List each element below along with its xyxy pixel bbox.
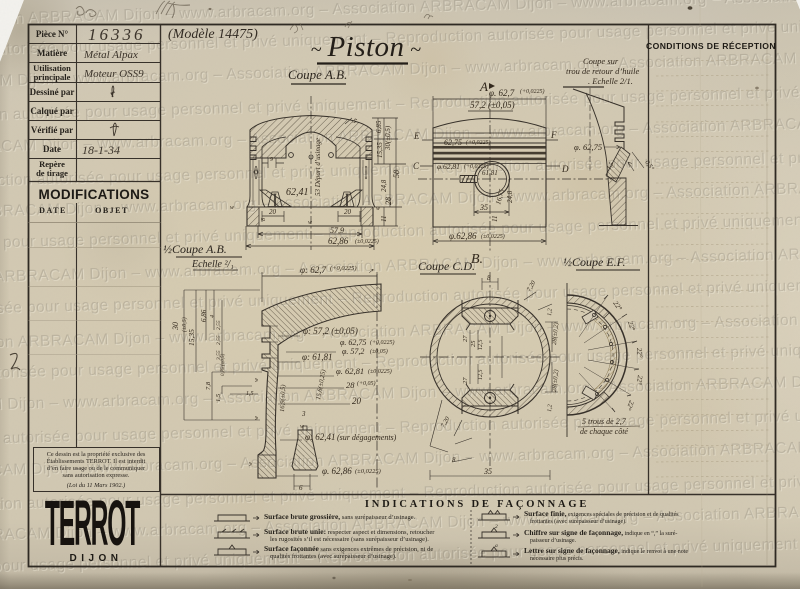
svg-text:1,2: 1,2 (547, 404, 554, 412)
svg-text:57,9: 57,9 (330, 226, 344, 235)
svg-text:DIJON: DIJON (69, 553, 122, 564)
svg-text:7,8: 7,8 (205, 381, 212, 390)
svg-text:les rugosités s’il est nécessa: les rugosités s’il est nécessaire (sans … (270, 536, 429, 543)
svg-text:22°: 22° (635, 347, 644, 358)
svg-text:↗: ↗ (368, 268, 374, 275)
svg-text:a: a (495, 543, 498, 549)
svg-text:25: 25 (470, 340, 477, 347)
svg-text:φ. 62,81: φ. 62,81 (336, 366, 364, 376)
svg-text:DATE: DATE (39, 206, 67, 215)
svg-text:de chaque côté: de chaque côté (580, 427, 628, 436)
svg-text:paisseur d’usinage.: paisseur d’usinage. (530, 538, 576, 544)
svg-text:20: 20 (269, 208, 277, 216)
svg-text:15,35: 15,35 (187, 329, 196, 346)
svg-text:Moteur OSS9: Moteur OSS9 (83, 68, 144, 80)
svg-text:Ce dessin est la propriété exc: Ce dessin est la propriété exclusive des (47, 451, 146, 458)
svg-text:w: w (248, 462, 254, 466)
svg-text:8: 8 (452, 456, 456, 464)
svg-text:½Coupe E.F.: ½Coupe E.F. (563, 255, 625, 269)
svg-text:frottantes (avec surépaisseur: frottantes (avec surépaisseur d’usinage)… (530, 518, 627, 525)
svg-text:20: 20 (344, 208, 352, 216)
svg-text:9: 9 (270, 157, 273, 163)
svg-text:4: 4 (209, 315, 216, 318)
svg-text:2,55: 2,55 (216, 320, 222, 330)
svg-text:d’en faire usage ou de le comm: d’en faire usage ou de le communiquer (47, 465, 146, 472)
svg-text:MODIFICATIONS: MODIFICATIONS (39, 187, 150, 202)
svg-text:20: 20 (352, 396, 362, 406)
svg-text:35: 35 (483, 467, 492, 476)
svg-text:½Coupe A.B.: ½Coupe A.B. (163, 242, 227, 256)
svg-text:53 Départ d’usinage: 53 Départ d’usinage (314, 138, 322, 196)
svg-text:(Modèle 14475): (Modèle 14475) (168, 27, 258, 42)
svg-text:1,5: 1,5 (215, 393, 222, 402)
svg-text:0,75 (±0,5): 0,75 (±0,5) (221, 353, 226, 376)
svg-text:(±0,0225): (±0,0225) (355, 468, 381, 475)
svg-text:φ: 61,81: φ: 61,81 (302, 352, 332, 362)
svg-text:C: C (413, 161, 420, 171)
svg-text:(±0,05): (±0,05) (370, 348, 388, 355)
svg-text:Echelle ²/₁: Echelle ²/₁ (191, 259, 234, 270)
svg-text:Surface façonnée sans exigence: Surface façonnée sans exigences extrêmes… (264, 544, 433, 553)
svg-text:Vérifié par: Vérifié par (31, 125, 73, 135)
svg-text:E: E (413, 131, 420, 141)
svg-text:φ. 62,7: φ. 62,7 (489, 88, 515, 98)
svg-text:φ. 57,2: φ. 57,2 (342, 347, 364, 356)
svg-text:A: A (479, 79, 488, 94)
svg-text:TERROT: TERROT (45, 488, 141, 559)
svg-text:2: 2 (495, 524, 498, 530)
svg-text:16336: 16336 (88, 25, 146, 44)
svg-text:28: 28 (346, 380, 355, 390)
svg-text:(±0,0225): (±0,0225) (481, 233, 505, 240)
svg-text:w: w (308, 220, 312, 226)
svg-text:15,35: 15,35 (376, 142, 384, 158)
svg-text:CONDITIONS DE RÉCEPTION: CONDITIONS DE RÉCEPTION (646, 41, 776, 51)
svg-text:trou de retour d’huile: trou de retour d’huile (566, 66, 639, 76)
svg-text:φ: 62,7: φ: 62,7 (300, 265, 326, 275)
svg-text:6: 6 (299, 484, 303, 492)
svg-text:φ. 62,75: φ. 62,75 (340, 338, 366, 347)
svg-text:OBJET: OBJET (95, 206, 129, 215)
svg-text:8: 8 (261, 218, 267, 221)
svg-text:(+0,0225): (+0,0225) (330, 265, 357, 272)
svg-text:62,41: 62,41 (286, 187, 309, 198)
svg-text:qualités frottantes (avec suré: qualités frottantes (avec surépaisseur d… (270, 553, 397, 560)
svg-text:Surface brute grossière, sans: Surface brute grossière, sans surépaisse… (264, 512, 416, 521)
svg-text:58: 58 (392, 170, 401, 178)
svg-text:w: w (230, 205, 234, 211)
svg-text:5 trous de 2,7: 5 trous de 2,7 (582, 417, 627, 426)
svg-text:Métal Alpax: Métal Alpax (83, 49, 138, 61)
svg-text:30(±0,5): 30(±0,5) (384, 125, 392, 151)
svg-text:3: 3 (301, 410, 306, 418)
svg-text:Coupe A.B.: Coupe A.B. (288, 67, 347, 82)
svg-text:6,86: 6,86 (200, 309, 208, 322)
svg-text:de tirage: de tirage (36, 168, 68, 178)
svg-text:22°: 22° (635, 375, 644, 386)
svg-text:11: 11 (491, 216, 499, 222)
svg-text:φ. 62,75: φ. 62,75 (574, 142, 602, 152)
svg-text:(+0,0225): (+0,0225) (466, 139, 491, 146)
svg-text:φ. 62,86: φ. 62,86 (322, 466, 352, 476)
svg-text:27: 27 (462, 377, 469, 384)
svg-text:Calqué par: Calqué par (30, 106, 73, 116)
svg-text:28: 28 (384, 197, 393, 205)
svg-text:Coupe C.D.: Coupe C.D. (418, 259, 475, 273)
svg-text:w: w (300, 424, 304, 430)
svg-text:24,8: 24,8 (380, 179, 388, 192)
svg-text:(+0,05): (+0,05) (357, 380, 376, 387)
svg-text:27: 27 (462, 335, 469, 342)
svg-text:Établissements TERROT. Il est: Établissements TERROT. Il est interdit (47, 457, 146, 465)
svg-text:(+0,0225): (+0,0225) (520, 88, 545, 95)
svg-text:φ.62,81: φ.62,81 (437, 162, 460, 171)
svg-text:12,5: 12,5 (478, 370, 484, 381)
svg-text:16,9(±0,5): 16,9(±0,5) (279, 384, 287, 412)
svg-text:12,5: 12,5 (478, 340, 484, 351)
svg-text:φ: 57,2 (±0,05): φ: 57,2 (±0,05) (303, 326, 358, 336)
svg-text:1,5: 1,5 (246, 391, 254, 397)
svg-text:Dessiné par: Dessiné par (30, 87, 75, 97)
svg-text:11: 11 (380, 216, 388, 222)
svg-text:w: w (376, 206, 380, 212)
svg-text:w: w (254, 416, 260, 420)
svg-text:62,86: 62,86 (328, 236, 349, 246)
svg-text:6,85: 6,85 (375, 120, 383, 133)
svg-text:8: 8 (487, 274, 491, 282)
svg-text:62,75: 62,75 (444, 138, 462, 147)
svg-text:2,55: 2,55 (216, 335, 222, 345)
svg-text:24,8: 24,8 (506, 190, 514, 203)
svg-text:sans autorisation expresse.: sans autorisation expresse. (63, 472, 130, 479)
svg-text:Date: Date (43, 144, 61, 154)
svg-text:w: w (254, 378, 260, 382)
svg-text:nécessaire plus précis.: nécessaire plus précis. (530, 556, 584, 562)
svg-text:Pièce N°: Pièce N° (36, 29, 69, 39)
svg-text:principale: principale (34, 72, 71, 82)
svg-text:61,81: 61,81 (482, 169, 498, 177)
svg-text:Surface brute unie: respecter: Surface brute unie: respecter aspect et … (264, 527, 435, 536)
svg-text:Coupe sur: Coupe sur (583, 56, 619, 66)
svg-text:D: D (561, 164, 569, 174)
svg-text:35: 35 (479, 203, 488, 212)
svg-text:φ.62,86: φ.62,86 (449, 231, 477, 241)
svg-text:(±0,0225): (±0,0225) (355, 238, 379, 245)
svg-text:1,2: 1,2 (547, 308, 554, 316)
svg-text:57,2 (±0,05): 57,2 (±0,05) (470, 100, 515, 110)
svg-text:. Echelle 2/1.: . Echelle 2/1. (588, 76, 633, 86)
svg-text:(+0,0225): (+0,0225) (370, 339, 395, 346)
svg-text:30: 30 (171, 322, 180, 331)
svg-text:F: F (550, 130, 557, 140)
svg-text:φ: 62,41: φ: 62,41 (305, 432, 335, 442)
svg-text:(sur dégagements): (sur dégagements) (337, 433, 397, 442)
svg-text:Matière: Matière (37, 48, 67, 58)
svg-text:(±0,0225): (±0,0225) (368, 368, 392, 375)
svg-text:18-1-34: 18-1-34 (82, 143, 120, 157)
